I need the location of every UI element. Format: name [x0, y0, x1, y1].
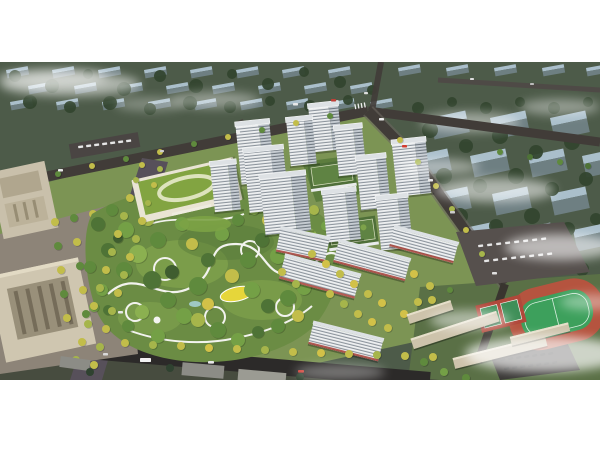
pond [189, 301, 201, 307]
scene-svg [0, 62, 600, 380]
school-lawn [179, 216, 231, 232]
screenshot-canvas [0, 0, 600, 450]
canopy [154, 317, 161, 324]
